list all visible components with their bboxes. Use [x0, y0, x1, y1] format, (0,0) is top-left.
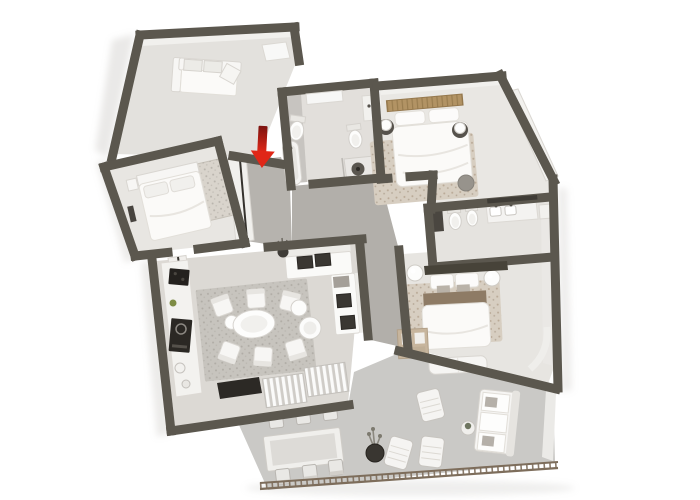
dark-cushion	[340, 315, 355, 329]
dining-chair	[253, 346, 272, 366]
nightstand	[126, 178, 138, 191]
wall	[313, 178, 381, 184]
bed-pillow	[395, 110, 426, 126]
wall	[198, 243, 245, 249]
coffee-table	[291, 300, 307, 316]
lounge-sofa	[171, 57, 241, 96]
wall	[553, 179, 558, 388]
kitchen-sink	[182, 380, 190, 388]
bed-pillow	[428, 107, 459, 123]
side-table	[461, 421, 475, 435]
skylight	[262, 42, 290, 61]
dark-cushion	[336, 294, 351, 308]
cooktop	[168, 268, 189, 286]
floor-plan-image	[0, 0, 700, 500]
duvet	[422, 302, 491, 349]
dining-chair	[246, 288, 265, 308]
sink	[490, 206, 502, 216]
lounge-chair	[418, 436, 444, 469]
sink	[505, 205, 517, 215]
wall	[428, 208, 433, 267]
faucet	[367, 104, 370, 107]
outdoor-sofa	[474, 387, 521, 457]
kitchen-plant	[170, 300, 177, 307]
wall	[294, 27, 299, 61]
bedside-lamp	[452, 122, 468, 138]
wall	[381, 178, 388, 179]
ball-lamp	[407, 265, 423, 281]
entrance-arrow-shaft	[257, 126, 267, 152]
ball-lamp	[484, 270, 500, 286]
kettle	[175, 363, 185, 373]
floor-plan-canvas	[0, 0, 700, 500]
outdoor-chair	[328, 459, 344, 476]
pouf	[458, 175, 474, 191]
coffee-table-inner	[304, 322, 317, 335]
throw	[333, 276, 350, 288]
oven	[169, 318, 193, 353]
dark-cushion	[297, 256, 313, 269]
dark-cushion	[315, 253, 331, 266]
